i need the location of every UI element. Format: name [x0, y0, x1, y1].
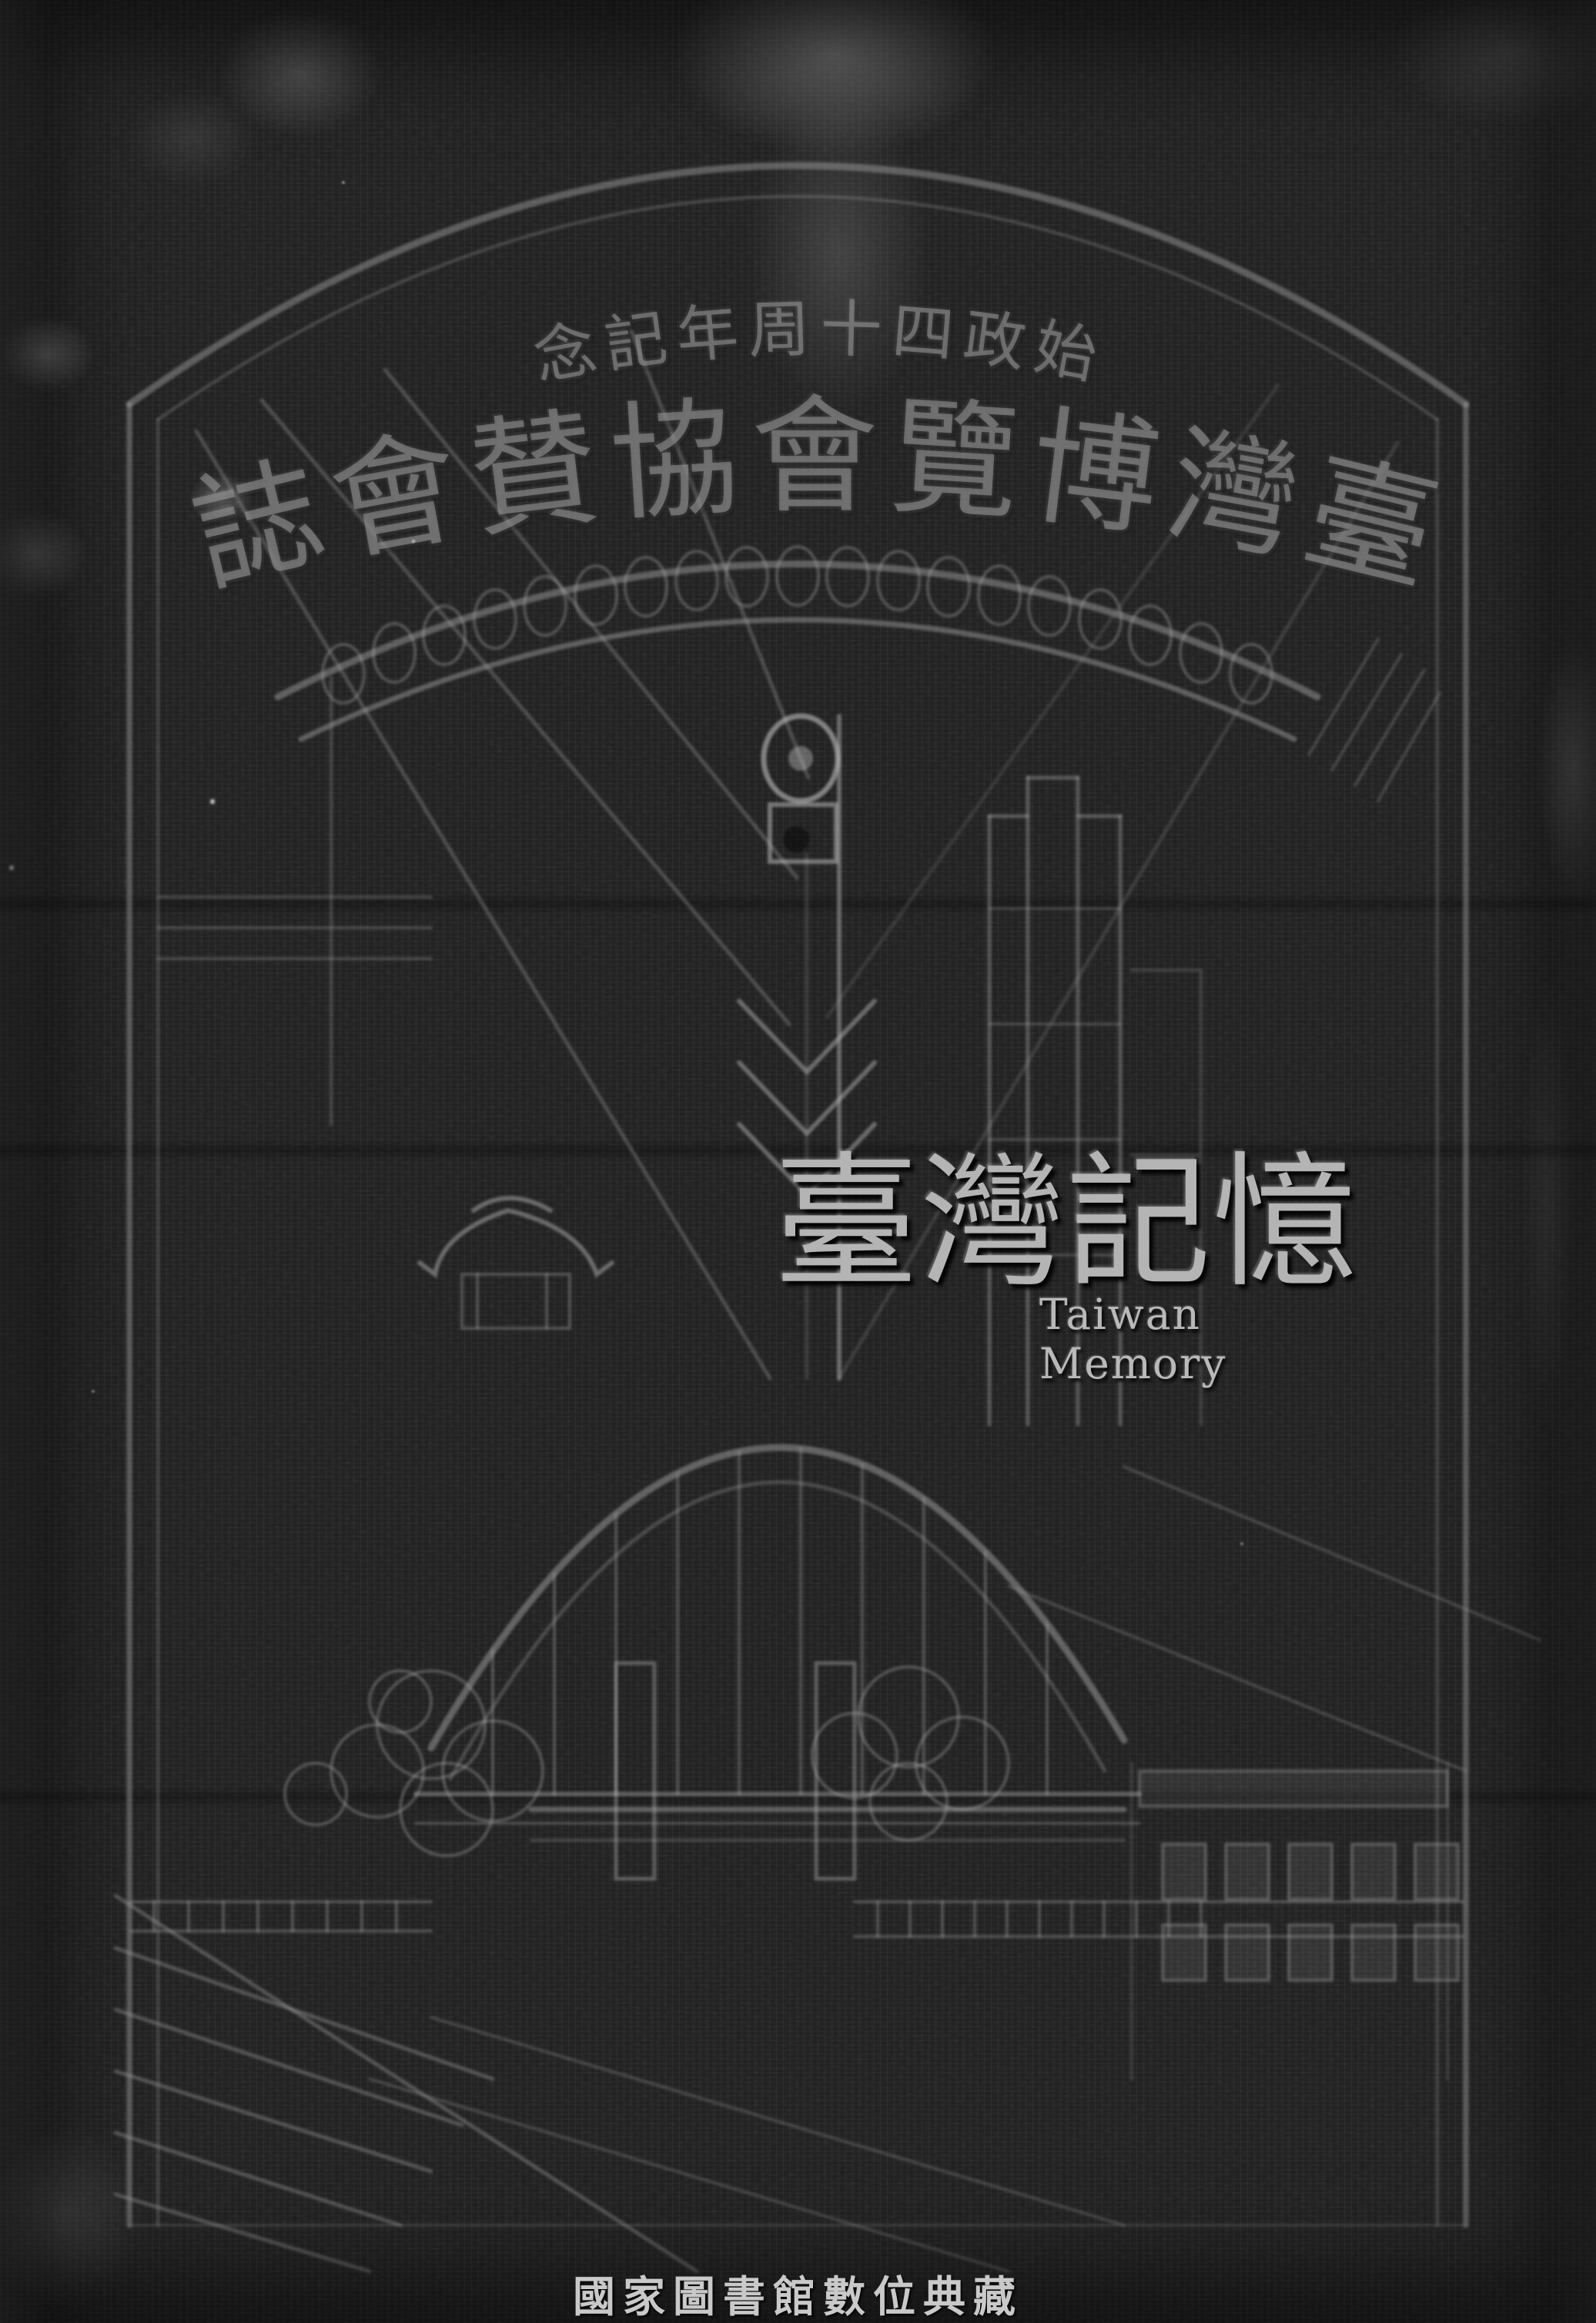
book-cover-scan: 念記年周十四政始 誌會賛協會覽博灣臺 臺灣記憶 Taiwan Memory 國家…: [0, 0, 1596, 2323]
digital-archive-caption: 國家圖書館數位典藏: [573, 2262, 1023, 2323]
edge-vignette: [0, 0, 1596, 2323]
